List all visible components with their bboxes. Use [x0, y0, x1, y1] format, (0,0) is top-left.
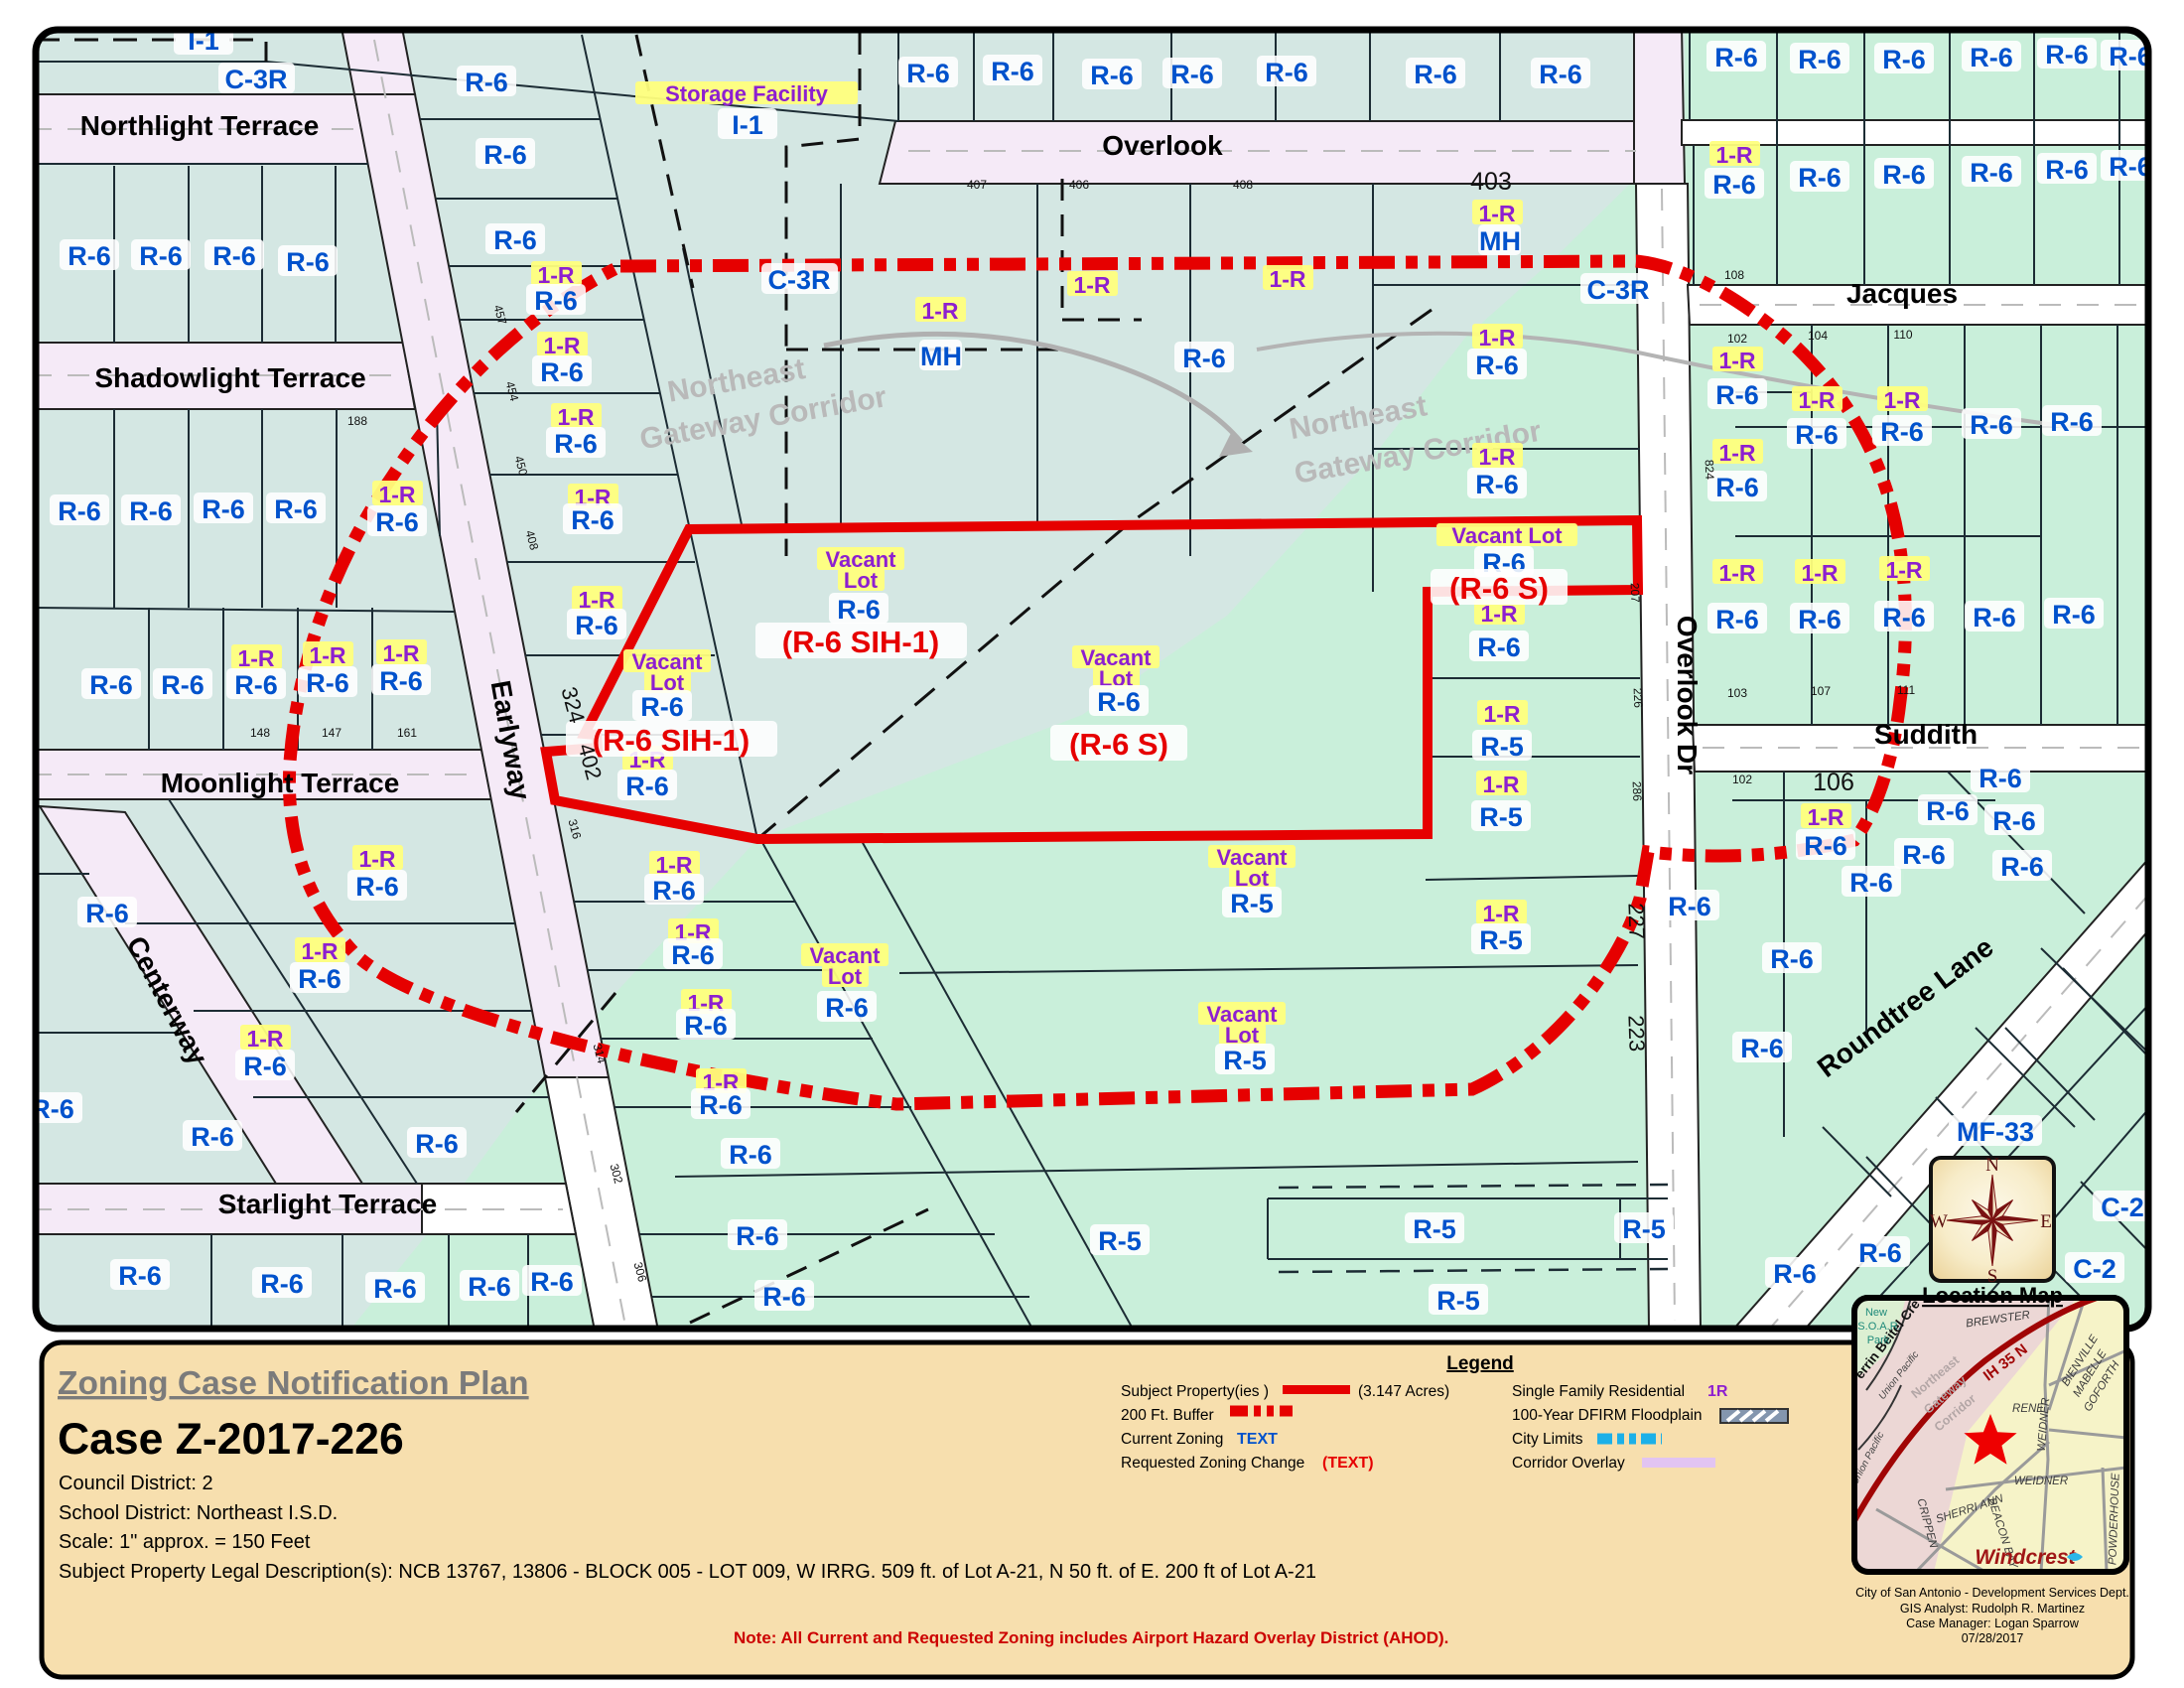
svg-text:R-6: R-6 [85, 899, 129, 928]
svg-text:R-6: R-6 [534, 286, 578, 316]
svg-text:1-R: 1-R [543, 333, 580, 358]
svg-text:R-6: R-6 [1712, 170, 1756, 200]
svg-text:R-6: R-6 [699, 1090, 743, 1120]
svg-text:R-6: R-6 [415, 1129, 459, 1159]
svg-text:R-6: R-6 [161, 670, 205, 700]
svg-text:Overlook Dr: Overlook Dr [1672, 616, 1703, 774]
svg-text:R-6: R-6 [1714, 43, 1758, 72]
svg-text:188: 188 [347, 414, 367, 428]
svg-text:R-6: R-6 [530, 1267, 574, 1297]
svg-text:R-6: R-6 [1926, 796, 1970, 826]
svg-text:R-6: R-6 [1970, 158, 2013, 188]
svg-text:R-6: R-6 [640, 692, 684, 722]
svg-text:R-6: R-6 [234, 670, 278, 700]
svg-text:R-6: R-6 [1798, 45, 1842, 74]
svg-text:R-6: R-6 [1882, 160, 1926, 190]
svg-text:R-5: R-5 [1479, 802, 1523, 832]
svg-text:Suddith: Suddith [1874, 719, 1978, 750]
svg-text:102: 102 [1727, 332, 1747, 346]
svg-text:1-R: 1-R [378, 482, 415, 507]
svg-text:R-6: R-6 [1668, 892, 1711, 921]
svg-text:1-R: 1-R [1478, 325, 1515, 351]
svg-text:R-5: R-5 [1622, 1214, 1666, 1244]
svg-text:1-R: 1-R [1807, 804, 1843, 830]
svg-text:Overlook: Overlook [1102, 130, 1223, 161]
svg-text:R-6: R-6 [375, 507, 419, 537]
svg-text:Legend: Legend [1446, 1353, 1514, 1374]
svg-text:R-6: R-6 [2045, 155, 2089, 185]
svg-text:R-6: R-6 [1265, 58, 1308, 87]
svg-text:City of San Antonio - Developm: City of San Antonio - Development Servic… [1855, 1586, 2129, 1600]
svg-text:R-6: R-6 [68, 241, 111, 271]
svg-text:148: 148 [250, 726, 270, 740]
svg-text:102: 102 [1732, 773, 1752, 786]
svg-text:R-6: R-6 [1740, 1034, 1784, 1063]
svg-text:111: 111 [1897, 683, 1916, 697]
svg-text:1-R: 1-R [1718, 440, 1755, 466]
svg-text:07/28/2017: 07/28/2017 [1962, 1631, 2024, 1645]
svg-text:R-6: R-6 [58, 496, 101, 526]
svg-text:MF-33: MF-33 [1957, 1117, 2034, 1147]
svg-text:Jacques: Jacques [1846, 278, 1958, 309]
svg-text:R-6: R-6 [736, 1221, 779, 1251]
svg-text:R-6: R-6 [652, 876, 696, 906]
svg-text:Case Z-2017-226: Case Z-2017-226 [58, 1415, 404, 1464]
svg-text:1-R: 1-R [1478, 444, 1515, 470]
svg-text:161: 161 [397, 726, 417, 740]
svg-text:Corridor Overlay: Corridor Overlay [1512, 1455, 1625, 1472]
svg-text:R-6: R-6 [762, 1282, 806, 1312]
svg-text:Subject Property(ies ): Subject Property(ies ) [1121, 1383, 1269, 1400]
svg-text:R-6: R-6 [306, 668, 349, 698]
svg-text:Lot: Lot [828, 964, 863, 989]
svg-text:1-R: 1-R [1883, 387, 1920, 413]
svg-text:Current Zoning: Current Zoning [1121, 1431, 1223, 1448]
svg-text:R-6: R-6 [1477, 633, 1521, 662]
svg-text:1-R: 1-R [1718, 348, 1755, 373]
svg-text:R-6: R-6 [554, 429, 598, 459]
svg-text:R-6: R-6 [540, 357, 584, 387]
svg-text:R-6: R-6 [89, 670, 133, 700]
svg-text:W: W [1930, 1211, 1948, 1232]
svg-text:1-R: 1-R [1482, 901, 1519, 926]
svg-text:R-5: R-5 [1098, 1226, 1142, 1256]
svg-text:Storage Facility: Storage Facility [665, 81, 829, 106]
svg-text:R-6: R-6 [1882, 45, 1926, 74]
svg-text:R-6: R-6 [1773, 1259, 1817, 1289]
svg-text:R-6: R-6 [1880, 417, 1924, 447]
svg-text:R-6: R-6 [825, 993, 869, 1023]
svg-text:1-R: 1-R [1478, 201, 1515, 226]
svg-text:Starlight Terrace: Starlight Terrace [218, 1189, 437, 1219]
svg-text:C-3R: C-3R [224, 65, 287, 94]
svg-text:R-6: R-6 [1090, 61, 1134, 90]
svg-text:Shadowlight Terrace: Shadowlight Terrace [94, 362, 365, 393]
svg-text:R-6: R-6 [202, 494, 245, 524]
svg-text:407: 407 [967, 178, 987, 192]
svg-text:R-6: R-6 [1475, 351, 1519, 380]
svg-text:1-R: 1-R [309, 642, 345, 668]
svg-text:Case Manager: Logan Sparrow: Case Manager: Logan Sparrow [1906, 1617, 2080, 1630]
svg-text:1-R: 1-R [246, 1026, 283, 1052]
svg-text:R-6: R-6 [483, 140, 527, 170]
svg-text:Lot: Lot [844, 568, 879, 593]
svg-text:1-R: 1-R [1715, 142, 1752, 168]
svg-text:Vacant Lot: Vacant Lot [1451, 523, 1563, 548]
svg-text:R-6: R-6 [212, 241, 256, 271]
svg-text:I-1: I-1 [732, 110, 763, 140]
svg-text:C-2: C-2 [2073, 1254, 2116, 1284]
svg-text:R-6: R-6 [2052, 600, 2096, 630]
svg-text:R-6: R-6 [837, 595, 881, 625]
svg-text:R-6: R-6 [1715, 380, 1759, 410]
svg-text:R-6: R-6 [1882, 603, 1926, 633]
svg-text:(3.147 Acres): (3.147 Acres) [1358, 1383, 1449, 1400]
svg-text:R-6: R-6 [671, 940, 715, 970]
svg-text:R-6: R-6 [1414, 60, 1457, 89]
svg-text:TEXT: TEXT [1237, 1431, 1278, 1448]
svg-text:R-6: R-6 [191, 1122, 234, 1152]
svg-text:1-R: 1-R [557, 404, 594, 430]
svg-text:R-6: R-6 [1902, 840, 1946, 870]
svg-text:E: E [2040, 1211, 2052, 1232]
svg-text:R-6: R-6 [1795, 420, 1839, 450]
svg-text:R-6: R-6 [991, 57, 1034, 86]
svg-text:1-R: 1-R [237, 645, 274, 671]
svg-text:403: 403 [1470, 168, 1512, 196]
svg-text:(R-6 S): (R-6 S) [1449, 571, 1549, 606]
svg-text:1-R: 1-R [1482, 772, 1519, 797]
svg-text:C-2: C-2 [2101, 1193, 2144, 1222]
svg-text:R-5: R-5 [1230, 889, 1274, 918]
svg-text:1-R: 1-R [1718, 560, 1755, 586]
svg-text:R-6: R-6 [298, 964, 341, 994]
svg-text:R-5: R-5 [1413, 1214, 1456, 1244]
svg-text:106: 106 [1813, 769, 1854, 796]
svg-text:1-R: 1-R [1073, 272, 1110, 298]
svg-text:C-3R: C-3R [1586, 275, 1649, 305]
svg-text:Requested Zoning Change: Requested Zoning Change [1121, 1455, 1304, 1472]
svg-text:R-6: R-6 [1097, 687, 1141, 717]
svg-text:R-5: R-5 [1436, 1286, 1480, 1316]
svg-text:R-6: R-6 [468, 1272, 511, 1302]
svg-text:R-6: R-6 [118, 1261, 162, 1291]
svg-text:223: 223 [1623, 1015, 1649, 1053]
svg-text:107: 107 [1811, 684, 1831, 698]
svg-text:R-6: R-6 [274, 494, 318, 524]
svg-text:406: 406 [1069, 178, 1089, 192]
svg-text:C-3R: C-3R [767, 265, 830, 295]
svg-text:R-6: R-6 [1182, 344, 1226, 373]
svg-text:R-6: R-6 [1849, 868, 1893, 898]
svg-text:New: New [1865, 1307, 1887, 1319]
svg-text:R-6: R-6 [129, 496, 173, 526]
svg-text:R-6: R-6 [1770, 944, 1814, 974]
svg-text:1-R: 1-R [358, 846, 395, 872]
svg-text:MH: MH [1479, 226, 1521, 256]
svg-text:R-6: R-6 [729, 1140, 772, 1170]
svg-text:R-5: R-5 [1479, 925, 1523, 955]
svg-text:1-R: 1-R [1885, 557, 1922, 583]
svg-text:R-6: R-6 [260, 1269, 304, 1299]
svg-text:226: 226 [1631, 688, 1646, 709]
svg-text:R-6: R-6 [1992, 806, 2036, 836]
svg-text:1-R: 1-R [1801, 560, 1838, 586]
svg-text:1-R: 1-R [1269, 266, 1305, 292]
svg-text:R-6: R-6 [2045, 40, 2089, 70]
svg-text:Subject Property Legal Descrip: Subject Property Legal Description(s): N… [59, 1561, 1316, 1583]
svg-text:Single Family Residential: Single Family Residential [1512, 1383, 1685, 1400]
svg-text:R-6: R-6 [906, 59, 950, 88]
svg-text:R-6: R-6 [355, 872, 399, 902]
svg-text:(R-6 S): (R-6 S) [1069, 727, 1168, 762]
svg-text:R-6: R-6 [1475, 470, 1519, 499]
svg-text:227: 227 [1623, 903, 1649, 940]
svg-text:Council District: 2: Council District: 2 [59, 1473, 213, 1494]
svg-text:Note: All Current and Requeste: Note: All Current and Requested Zoning i… [734, 1628, 1448, 1647]
svg-text:R-6: R-6 [1170, 60, 1214, 89]
svg-text:104: 104 [1808, 329, 1828, 343]
svg-text:R-6: R-6 [1973, 603, 2016, 633]
svg-text:Scale: 1" approx. = 150 Feet: Scale: 1" approx. = 150 Feet [59, 1531, 311, 1553]
svg-text:R-6: R-6 [625, 772, 669, 801]
svg-text:1R: 1R [1707, 1383, 1728, 1400]
svg-text:Northlight Terrace: Northlight Terrace [80, 110, 320, 141]
svg-text:R-6: R-6 [1970, 43, 2013, 72]
svg-text:WEIDNER: WEIDNER [2014, 1476, 2068, 1487]
svg-text:R-6: R-6 [2050, 407, 2094, 437]
svg-text:108: 108 [1724, 268, 1744, 282]
svg-text:N: N [1985, 1155, 1999, 1176]
svg-text:GIS Analyst: Rudolph R. Martin: GIS Analyst: Rudolph R. Martinez [1900, 1602, 2085, 1616]
svg-text:R-6: R-6 [373, 1274, 417, 1304]
svg-text:(TEXT): (TEXT) [1322, 1455, 1374, 1472]
svg-text:R-6: R-6 [286, 247, 330, 277]
svg-text:R-6: R-6 [1979, 764, 2022, 793]
svg-text:R-6: R-6 [1858, 1238, 1902, 1268]
svg-text:Park: Park [1867, 1335, 1890, 1346]
svg-text:200 Ft. Buffer: 200 Ft. Buffer [1121, 1407, 1214, 1424]
svg-text:R-6: R-6 [684, 1011, 728, 1041]
svg-text:R-6: R-6 [465, 68, 508, 97]
svg-text:1-R: 1-R [1798, 387, 1835, 413]
svg-text:R-5: R-5 [1223, 1046, 1267, 1075]
svg-text:S.O.A.R.: S.O.A.R. [1857, 1321, 1900, 1333]
svg-text:R-6: R-6 [1804, 831, 1847, 861]
svg-text:Windcrest: Windcrest [1975, 1546, 2076, 1569]
svg-text:R-6: R-6 [1970, 410, 2013, 440]
svg-text:103: 103 [1727, 686, 1747, 700]
svg-text:School District: Northeast I.S: School District: Northeast I.S.D. [59, 1502, 338, 1524]
svg-text:Moonlight Terrace: Moonlight Terrace [161, 768, 400, 798]
svg-text:R-6: R-6 [1539, 60, 1582, 89]
svg-text:R-6: R-6 [2000, 852, 2044, 882]
svg-text:1-R: 1-R [921, 298, 958, 324]
svg-text:R-5: R-5 [1480, 732, 1524, 762]
svg-text:(R-6 SIH-1): (R-6 SIH-1) [593, 723, 750, 758]
svg-text:R-6: R-6 [1715, 605, 1759, 634]
svg-text:R-6: R-6 [379, 666, 423, 696]
svg-text:R-6: R-6 [1798, 163, 1842, 193]
svg-text:100-Year DFIRM Floodplain: 100-Year DFIRM Floodplain [1512, 1407, 1703, 1424]
svg-text:408: 408 [1233, 178, 1253, 192]
svg-text:1-R: 1-R [1483, 701, 1520, 727]
svg-text:110: 110 [1893, 328, 1912, 342]
svg-text:City Limits: City Limits [1512, 1431, 1583, 1448]
svg-text:286: 286 [1630, 781, 1645, 802]
svg-text:R-6: R-6 [571, 505, 614, 535]
svg-text:R-6: R-6 [493, 225, 537, 255]
svg-text:1-R: 1-R [382, 640, 419, 666]
svg-text:1-R: 1-R [301, 938, 338, 964]
svg-text:R-6: R-6 [1798, 605, 1842, 634]
svg-text:824: 824 [1703, 460, 1717, 481]
svg-text:R-6: R-6 [575, 611, 618, 640]
svg-text:(R-6 SIH-1): (R-6 SIH-1) [782, 625, 939, 659]
svg-text:MH: MH [920, 342, 962, 371]
svg-text:Zoning Case Notification Plan: Zoning Case Notification Plan [58, 1365, 529, 1402]
svg-text:147: 147 [322, 726, 341, 740]
svg-text:R-6: R-6 [139, 241, 183, 271]
svg-text:207: 207 [1628, 583, 1643, 604]
svg-text:R-6: R-6 [243, 1052, 287, 1081]
svg-text:R-6: R-6 [1715, 473, 1759, 502]
